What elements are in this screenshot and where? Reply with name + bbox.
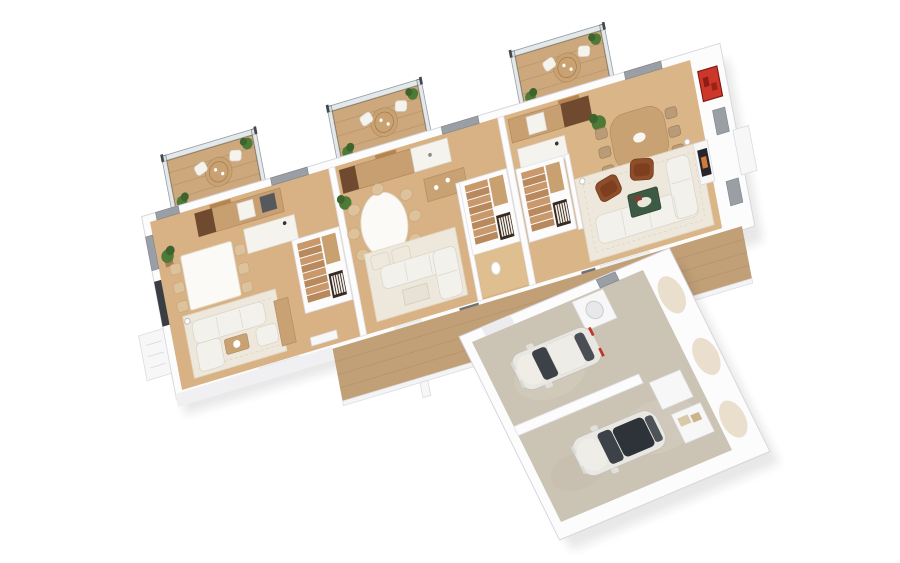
floor-plan-svg [0,0,900,563]
leather-armchair [630,158,653,181]
floor-plan-render [0,0,900,563]
deck-bracket [420,380,431,397]
